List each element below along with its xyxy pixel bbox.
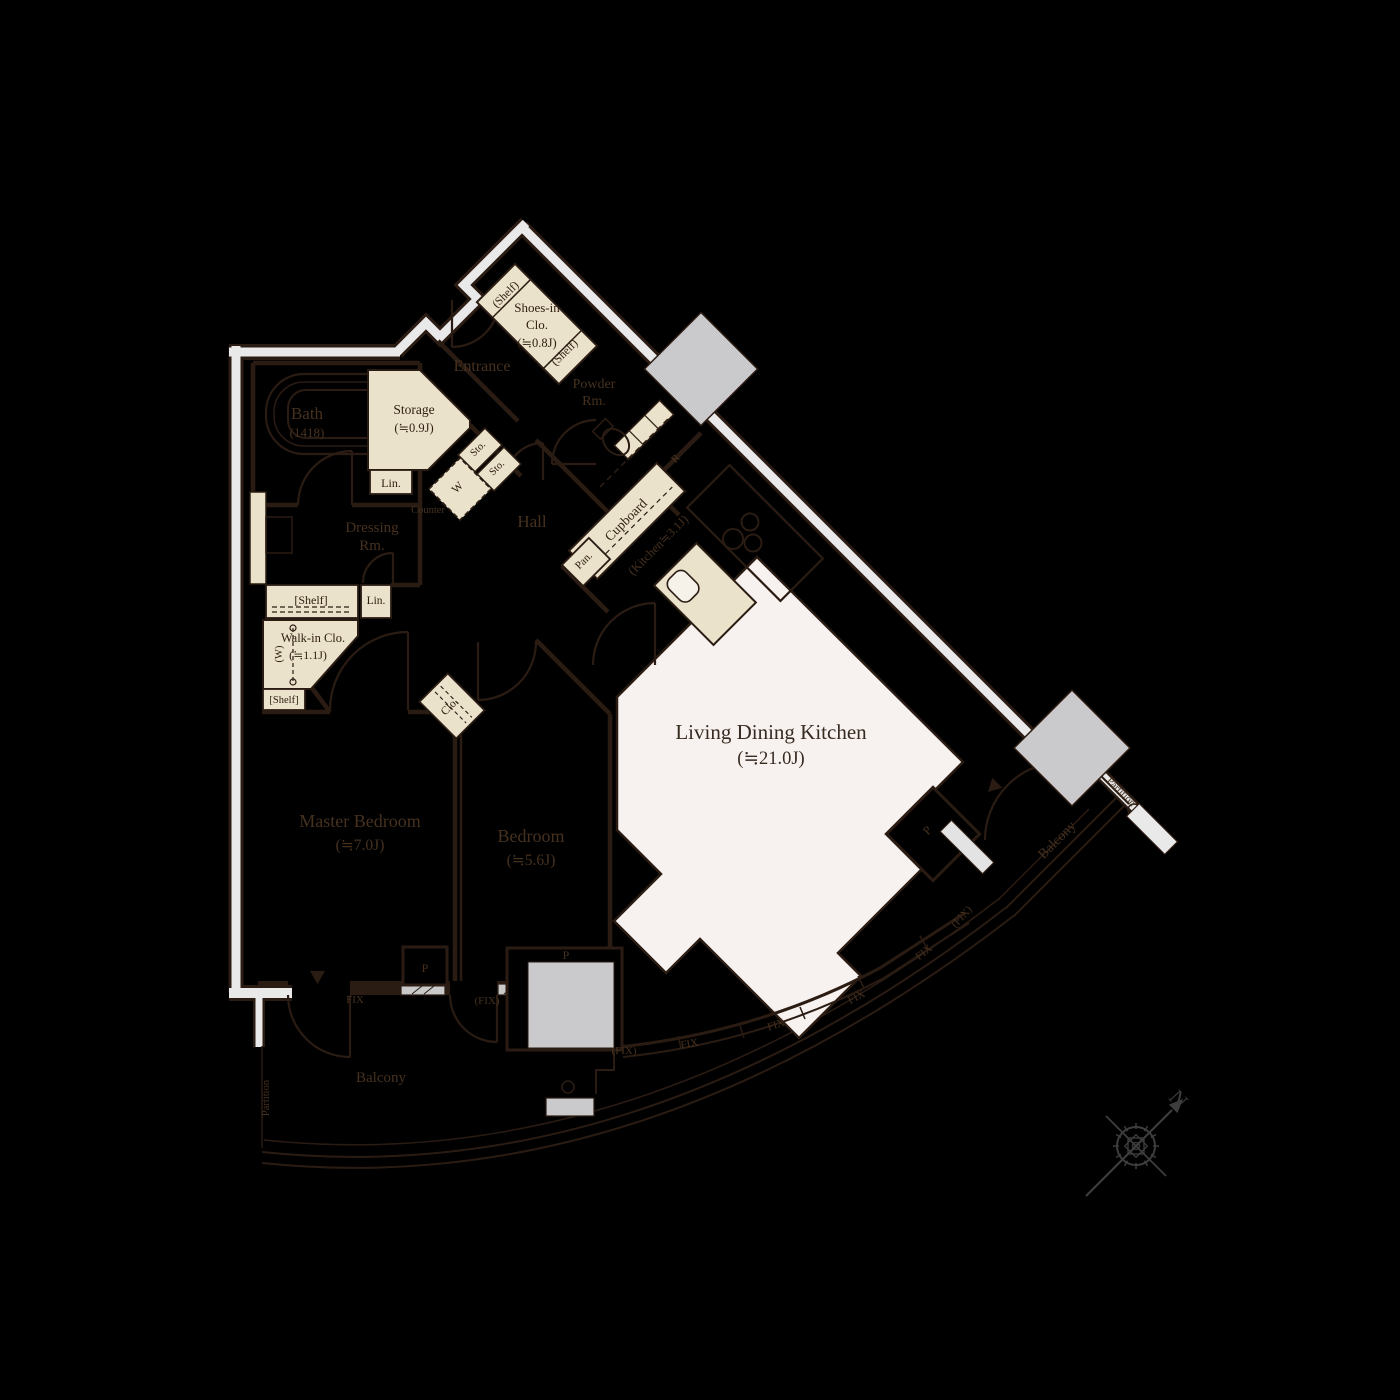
label-shoes-closet-area: (≒0.8J) — [517, 336, 556, 350]
room-label-master-bedroom-area: (≒7.0J) — [336, 837, 385, 854]
label-fix-3: (FIX) — [611, 1045, 636, 1057]
room-label-ldk: Living Dining Kitchen — [675, 720, 867, 744]
label-washer-paren: (W) — [274, 645, 285, 662]
room-label-ldk-area: (≒21.0J) — [737, 749, 804, 769]
label-pillar-2: P — [563, 948, 570, 962]
room-label-hall: Hall — [517, 512, 547, 531]
room-label-balcony-south: Balcony — [356, 1070, 406, 1086]
label-shoes-closet-1: Shoes-in — [514, 300, 560, 315]
room-label-master-bedroom: Master Bedroom — [299, 811, 420, 831]
label-storage-area: (≒0.9J) — [394, 421, 433, 435]
washbasin-counter — [250, 492, 266, 584]
label-linen-1: Lin. — [381, 476, 401, 490]
room-label-bath-area: (1418) — [290, 425, 325, 440]
room-label-bath: Bath — [291, 404, 324, 423]
room-label-dressing-2: Rm. — [359, 538, 384, 554]
pillar-south — [528, 962, 614, 1048]
room-label-powder-1: Powder — [573, 377, 616, 392]
label-fix-1: FIX — [346, 994, 364, 1006]
floor-plan-image: Shoes-in Clo. (≒0.8J) (Shelf) (Shelf) En… — [0, 0, 1400, 1400]
label-storage: Storage — [393, 402, 434, 417]
room-label-bedroom: Bedroom — [498, 826, 565, 846]
drain-block — [546, 1098, 594, 1116]
floor-plan-page: Shoes-in Clo. (≒0.8J) (Shelf) (Shelf) En… — [0, 0, 1400, 1400]
label-walk-in-closet: Walk-in Clo. — [281, 631, 345, 645]
label-shelf-bracket-2: [Shelf] — [269, 695, 298, 706]
label-shelf-bracket-1: [Shelf] — [294, 593, 327, 607]
room-label-entrance: Entrance — [454, 358, 511, 375]
room-label-powder-2: Rm. — [582, 394, 606, 409]
label-linen-2: Lin. — [367, 595, 386, 607]
label-counter: Counter — [411, 505, 445, 516]
label-partition-south: Partition — [261, 1079, 272, 1116]
room-label-bedroom-area: (≒5.6J) — [507, 852, 556, 869]
label-pillar-1: P — [422, 961, 429, 975]
room-label-dressing-1: Dressing — [345, 520, 399, 536]
label-shoes-closet-2: Clo. — [526, 317, 548, 332]
label-walk-in-closet-area: (≒1.1J) — [289, 648, 327, 662]
label-fix-2: (FIX) — [474, 995, 499, 1007]
